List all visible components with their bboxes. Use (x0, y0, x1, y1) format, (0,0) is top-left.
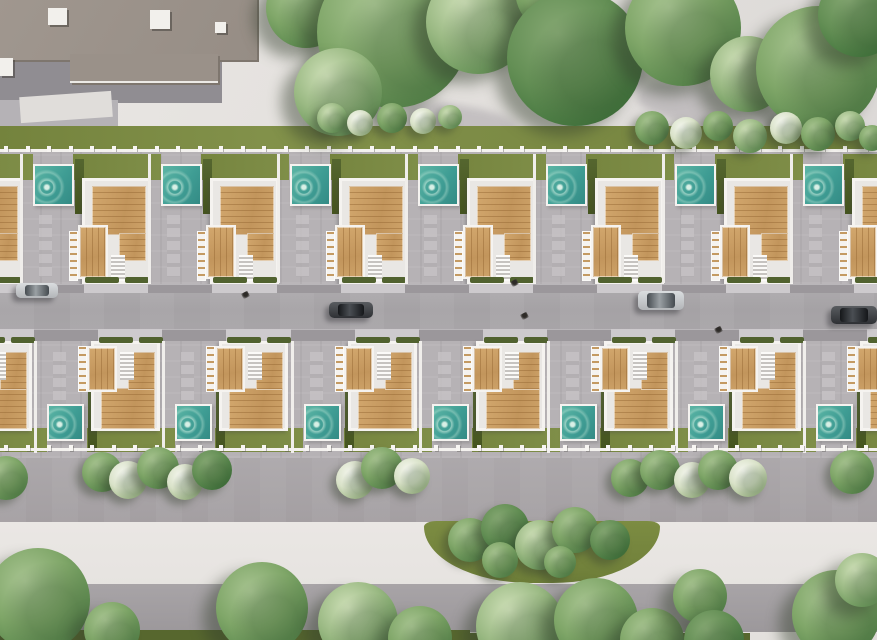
driveway-apron (547, 329, 611, 341)
front-hedge (652, 337, 676, 343)
driveway-apron (675, 329, 739, 341)
front-hedge (638, 277, 662, 283)
lot-divider (148, 154, 151, 283)
paver-path (167, 215, 180, 277)
bush (590, 520, 630, 560)
pool (418, 164, 459, 206)
pool (175, 404, 212, 441)
fence-post (176, 445, 180, 451)
ladder (69, 231, 78, 281)
paver-path (39, 215, 52, 277)
ladder (719, 346, 728, 392)
lot-divider (419, 341, 422, 453)
fence-post (563, 445, 567, 451)
ladder (582, 231, 591, 281)
pool (803, 164, 844, 206)
lower-deck (335, 225, 365, 279)
villa-house (604, 341, 673, 431)
fence-post (864, 445, 868, 451)
fence-post (434, 445, 438, 451)
fence-post (327, 445, 331, 451)
lot-divider (20, 154, 23, 283)
pool (432, 404, 469, 441)
paver-path (424, 215, 437, 277)
fence-post (219, 445, 223, 451)
lower-deck (463, 225, 493, 279)
fence-post (757, 445, 761, 451)
front-hedge (524, 337, 548, 343)
front-hedge (0, 337, 5, 343)
fence-post (671, 445, 675, 451)
lot-divider (675, 341, 678, 453)
car-windshield (647, 293, 675, 308)
car-windshield (338, 304, 364, 316)
fence-post (520, 445, 524, 451)
fence-post (735, 445, 739, 451)
front-hedge (139, 337, 163, 343)
front-hedge (0, 277, 21, 283)
ladder (197, 231, 206, 281)
front-hedge (227, 337, 261, 343)
villa-house (724, 178, 793, 284)
fence-post (69, 445, 73, 451)
staircase (120, 352, 134, 380)
paver-path (181, 352, 194, 407)
front-hedge (99, 337, 133, 343)
roof-deck (614, 388, 668, 429)
front-hedge (11, 337, 35, 343)
roof-deck (0, 388, 27, 429)
lower-walkway (55, 584, 877, 632)
front-hedge (267, 337, 291, 343)
pool (161, 164, 202, 206)
bush (635, 111, 669, 145)
roof-deck (486, 388, 540, 429)
rooftop-unit (48, 8, 67, 25)
villa-house (732, 341, 801, 431)
rooftop-unit (0, 58, 13, 76)
pool (546, 164, 587, 206)
front-hedge (740, 337, 774, 343)
bush (733, 119, 767, 153)
fence-post (649, 445, 653, 451)
fence-post (778, 445, 782, 451)
fence-post (692, 445, 696, 451)
lot-divider (547, 341, 550, 453)
bush (410, 108, 436, 134)
driveway-apron (405, 284, 469, 293)
paver-path (566, 352, 579, 407)
rooftop-unit (150, 10, 170, 29)
ladder (335, 346, 344, 392)
villa-house (82, 178, 151, 284)
fence-post (456, 445, 460, 451)
villa-house (0, 341, 32, 431)
pool (290, 164, 331, 206)
pool (304, 404, 341, 441)
front-hedge (382, 277, 406, 283)
lot-divider (533, 154, 536, 283)
fence-post (90, 445, 94, 451)
roof-deck-wing (0, 233, 18, 261)
lower-deck (472, 346, 502, 392)
front-hedge (727, 277, 761, 283)
rooftop-unit (215, 22, 226, 33)
roof-deck (101, 388, 155, 429)
lower-deck (78, 225, 108, 279)
fence-post (585, 445, 589, 451)
paver-path (438, 352, 451, 407)
front-hedge (780, 337, 804, 343)
villa-house (860, 341, 877, 431)
lower-deck (87, 346, 117, 392)
driveway-apron (34, 329, 98, 341)
pool (675, 164, 716, 206)
front-hedge (396, 337, 420, 343)
apartment-roof-extension (70, 54, 218, 83)
bush (770, 112, 802, 144)
front-hedge (767, 277, 791, 283)
pool (33, 164, 74, 206)
fence-post (133, 445, 137, 451)
lower-deck (728, 346, 758, 392)
fence-post (348, 445, 352, 451)
bush (192, 450, 232, 490)
bush (703, 111, 733, 141)
lot-divider (291, 341, 294, 453)
ladder (839, 231, 848, 281)
driveway-apron (277, 284, 341, 293)
front-hedge (855, 277, 877, 283)
staircase (248, 352, 262, 380)
bush (377, 103, 407, 133)
front-hedge (598, 277, 632, 283)
fence-post (241, 445, 245, 451)
paver-path (681, 215, 694, 277)
pool (816, 404, 853, 441)
front-hedge (125, 277, 149, 283)
front-hedge (612, 337, 646, 343)
front-hedge (484, 337, 518, 343)
lower-deck (600, 346, 630, 392)
lot-divider (34, 341, 37, 453)
front-hedge (342, 277, 376, 283)
bush (801, 117, 835, 151)
villa-house (852, 178, 877, 284)
villa-house (219, 341, 288, 431)
lot-divider (162, 341, 165, 453)
fence-post (606, 445, 610, 451)
bush (394, 458, 430, 494)
fence-post (112, 445, 116, 451)
villa-house (210, 178, 279, 284)
lower-deck (215, 346, 245, 392)
ladder (591, 346, 600, 392)
lower-deck (591, 225, 621, 279)
villa-house (595, 178, 664, 284)
pool (47, 404, 84, 441)
staircase (633, 352, 647, 380)
fence-post (4, 445, 8, 451)
driveway-apron (148, 284, 212, 293)
car (831, 306, 877, 324)
lower-deck (848, 225, 877, 279)
lower-deck (720, 225, 750, 279)
driveway-apron (533, 284, 597, 293)
fence-post (26, 445, 30, 451)
fence-post (499, 445, 503, 451)
ladder (463, 346, 472, 392)
front-hedge (868, 337, 877, 343)
roof-deck (0, 186, 18, 235)
lot-divider (662, 154, 665, 283)
pool (688, 404, 725, 441)
front-hedge (213, 277, 247, 283)
ladder (326, 231, 335, 281)
staircase (377, 352, 391, 380)
fence-post (628, 445, 632, 451)
driveway-apron (790, 284, 854, 293)
ladder (454, 231, 463, 281)
roof-deck (358, 388, 412, 429)
front-hedge (85, 277, 119, 283)
bush (729, 459, 767, 497)
bush (317, 103, 347, 133)
paver-path (809, 215, 822, 277)
driveway-apron (162, 329, 226, 341)
staircase (0, 352, 6, 380)
bush (830, 450, 874, 494)
lot-grass (586, 154, 674, 180)
fence-post (477, 445, 481, 451)
staircase (505, 352, 519, 380)
staircase (761, 352, 775, 380)
paver-path (53, 352, 66, 407)
fence-post (284, 445, 288, 451)
lower-deck (344, 346, 374, 392)
paver-path (694, 352, 707, 407)
bush (544, 546, 576, 578)
roof-deck (229, 388, 283, 429)
fence-post (262, 445, 266, 451)
car (329, 302, 373, 318)
ladder (78, 346, 87, 392)
lot-divider (803, 341, 806, 453)
driveway-apron (803, 329, 867, 341)
car-windshield (25, 285, 49, 296)
villa-house (467, 178, 536, 284)
villa-house (348, 341, 417, 431)
villa-house (91, 341, 160, 431)
villa-house (476, 341, 545, 431)
fence-post (821, 445, 825, 451)
villa-house (339, 178, 408, 284)
fence-post (47, 445, 51, 451)
bush (347, 110, 373, 136)
bush (670, 117, 702, 149)
fence-post (198, 445, 202, 451)
front-hedge (356, 337, 390, 343)
paver-path (310, 352, 323, 407)
driveway-apron (291, 329, 355, 341)
fence-post (413, 445, 417, 451)
ladder (206, 346, 215, 392)
lot-grass (201, 154, 289, 180)
fence-line (0, 448, 877, 451)
paver-path (296, 215, 309, 277)
fence-post (305, 445, 309, 451)
lot-divider (405, 154, 408, 283)
ladder (711, 231, 720, 281)
car-windshield (840, 308, 868, 322)
lower-deck (206, 225, 236, 279)
lot-grass (0, 154, 33, 180)
car (638, 291, 684, 310)
fence-post (800, 445, 804, 451)
aerial-site-render (0, 0, 877, 640)
paver-path (552, 215, 565, 277)
lot-divider (790, 154, 793, 283)
paver-path (822, 352, 835, 407)
driveway-apron (419, 329, 483, 341)
lower-deck (856, 346, 877, 392)
bush (482, 542, 518, 578)
bush (438, 105, 462, 129)
lot-divider (277, 154, 280, 283)
roof-deck (870, 388, 877, 429)
front-hedge (470, 277, 504, 283)
pool (560, 404, 597, 441)
front-hedge (253, 277, 277, 283)
car (16, 283, 58, 298)
ladder (847, 346, 856, 392)
fence-post (542, 445, 546, 451)
roof-deck (742, 388, 796, 429)
